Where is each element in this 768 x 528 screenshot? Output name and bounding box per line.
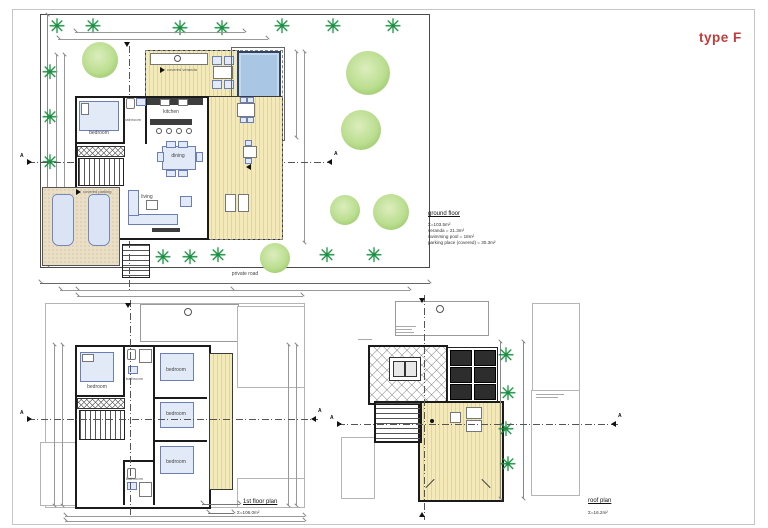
dining-chair xyxy=(178,170,188,177)
palm-tree-icon: ✳ xyxy=(83,17,103,37)
stool-icon xyxy=(156,128,162,134)
dining-chair xyxy=(166,170,176,177)
wardrobe xyxy=(77,146,125,157)
palm-tree-icon: ✳ xyxy=(317,246,337,266)
flue xyxy=(405,361,417,377)
palm-tree-icon: ✳ xyxy=(47,17,67,37)
label-arrow-icon xyxy=(76,189,81,195)
room-label-bedroom: bedroom xyxy=(158,460,194,465)
stool-icon xyxy=(176,128,182,134)
room-label-bedroom: bedroom xyxy=(82,131,116,136)
section-label: A xyxy=(334,152,338,157)
room-label-bedroom: bedroom xyxy=(158,368,194,373)
terrace-outline xyxy=(40,442,80,506)
dimension-line xyxy=(58,39,268,40)
road-edge-line xyxy=(40,283,430,284)
leader-line xyxy=(202,504,240,505)
car-icon xyxy=(88,194,110,246)
dimension-line xyxy=(296,345,297,505)
solar-panel-array xyxy=(447,347,498,402)
wardrobe xyxy=(77,398,125,409)
palm-tree-icon: ✳ xyxy=(496,346,516,366)
terrace-outline xyxy=(532,303,580,393)
solar-panel xyxy=(450,350,472,366)
plan-title: roof plan xyxy=(588,498,611,505)
palm-tree-icon: ✳ xyxy=(40,63,60,83)
palm-tree-icon: ✳ xyxy=(212,19,232,39)
car-icon xyxy=(52,194,74,246)
section-label: A xyxy=(318,409,322,414)
bush-icon xyxy=(346,51,390,95)
annotation-text-line xyxy=(396,326,416,327)
palm-tree-icon: ✳ xyxy=(40,108,60,128)
dimension-line xyxy=(65,521,305,522)
solar-panel xyxy=(450,384,472,400)
area-stat: parking place (covered) = 30.3m² xyxy=(428,240,496,246)
section-flag xyxy=(611,421,616,427)
sun-lounger xyxy=(466,420,482,432)
palm-tree-icon: ✳ xyxy=(170,19,190,39)
annotation-text-line xyxy=(536,397,558,398)
roof-terrace xyxy=(418,401,504,502)
drawing-type-title: type F xyxy=(699,30,742,45)
dining-chair xyxy=(178,141,188,148)
toilet-icon xyxy=(126,98,135,109)
section-label: A xyxy=(330,416,334,421)
terrace-outline xyxy=(531,390,580,496)
kitchen-counter xyxy=(147,98,203,105)
planter-edge xyxy=(523,342,524,498)
balcony-deck xyxy=(209,353,233,490)
bush-icon xyxy=(341,110,381,150)
kitchen-appliance xyxy=(160,99,170,106)
section-label: A xyxy=(618,414,622,419)
palm-tree-icon: ✳ xyxy=(496,420,516,440)
road-label: private road xyxy=(215,272,275,277)
area-stat: Σ=16.2m² xyxy=(588,510,608,516)
skylight-icon xyxy=(436,305,444,313)
solar-panel xyxy=(474,384,496,400)
toilet-icon xyxy=(127,349,136,360)
dimension-line xyxy=(304,52,305,242)
stool-icon xyxy=(166,128,172,134)
palm-tree-icon: ✳ xyxy=(208,246,228,266)
coffee-table xyxy=(146,200,158,210)
palm-tree-icon: ✳ xyxy=(498,455,518,475)
dimension-line xyxy=(296,52,297,137)
bush-icon xyxy=(260,243,290,273)
section-flag xyxy=(124,42,130,47)
interior-stairs xyxy=(78,158,124,186)
section-label: A xyxy=(20,154,24,159)
section-flag xyxy=(27,159,32,165)
interior-wall xyxy=(153,440,207,442)
solar-panel xyxy=(474,350,496,366)
dimension-line xyxy=(75,32,245,33)
sink-icon xyxy=(136,98,146,106)
dining-chair xyxy=(166,141,176,148)
flue xyxy=(393,361,405,377)
annotation-text-line xyxy=(536,394,564,395)
outdoor-table xyxy=(450,412,461,423)
palm-tree-icon: ✳ xyxy=(364,246,384,266)
annotation-text-line xyxy=(396,329,412,330)
shower-icon xyxy=(139,482,152,497)
room-label-bathroom: bathroom xyxy=(124,118,141,122)
pillow xyxy=(81,103,89,115)
palm-tree-icon: ✳ xyxy=(383,17,403,37)
dimension-line xyxy=(288,345,289,505)
bush-icon xyxy=(373,194,409,230)
kitchen-appliance xyxy=(178,99,188,106)
section-line-vertical xyxy=(424,295,425,520)
palm-tree-icon: ✳ xyxy=(498,384,518,404)
terrace-outline xyxy=(237,306,305,388)
palm-tree-icon: ✳ xyxy=(272,17,292,37)
stairs xyxy=(79,410,125,440)
interior-wall xyxy=(153,345,155,505)
dimension-line xyxy=(65,516,305,517)
dimension-line xyxy=(62,345,63,505)
plan-title: 1st floor plan xyxy=(243,499,277,506)
room-label-dining: dining xyxy=(162,154,194,159)
room-label-living: living xyxy=(134,195,160,200)
plan-title: ground floor xyxy=(428,211,496,218)
bush-icon xyxy=(330,195,360,225)
solar-panel xyxy=(450,367,472,383)
section-line-horizontal xyxy=(28,419,318,420)
section-flag xyxy=(419,298,425,303)
sink-icon xyxy=(127,482,137,490)
annotation-text-line xyxy=(358,339,372,340)
dimension-line xyxy=(54,345,55,505)
section-flag xyxy=(311,416,316,422)
bush-icon xyxy=(82,42,118,78)
section-flag xyxy=(337,421,342,427)
kitchen-island xyxy=(150,119,192,125)
armchair xyxy=(180,196,192,207)
section-line-horizontal xyxy=(338,424,618,425)
leader-line xyxy=(208,513,234,514)
palm-tree-icon: ✳ xyxy=(40,153,60,173)
palm-tree-icon: ✳ xyxy=(180,248,200,268)
interior-wall xyxy=(153,397,207,399)
section-flag xyxy=(125,303,131,308)
annotation-text-line xyxy=(396,332,414,333)
drawing-sheet: type F ✳ ✳ ✳ ✳ ✳ ✳ ✳ ✳ ✳ ✳ ✳ ✳ ✳ ✳ ✳ ✳ ✳… xyxy=(0,0,768,528)
level-marker-icon xyxy=(430,419,434,423)
stool-icon xyxy=(186,128,192,134)
room-label-bathroom: bathroom xyxy=(126,377,143,381)
dimension-line xyxy=(77,296,303,297)
interior-wall xyxy=(123,345,125,397)
pillow xyxy=(82,354,94,362)
room-label-kitchen: kitchen xyxy=(156,110,186,115)
section-flag xyxy=(419,512,425,517)
room-label-bedroom: bedroom xyxy=(80,385,114,390)
interior-wall xyxy=(75,395,125,397)
interior-wall xyxy=(123,460,155,462)
skylight-icon xyxy=(184,308,192,316)
sofa xyxy=(128,190,139,216)
shower-icon xyxy=(139,349,152,363)
sun-lounger xyxy=(466,407,482,419)
room-label-bedroom: bedroom xyxy=(158,412,194,417)
section-flag xyxy=(327,159,332,165)
ground-floor-caption: ground floor Σ=103.5m² veranda = 21.3m² … xyxy=(428,211,496,246)
interior-wall xyxy=(123,460,125,505)
section-label: A xyxy=(20,411,24,416)
dining-chair xyxy=(196,152,203,162)
solar-panel xyxy=(474,367,496,383)
area-stat: Σ=106.0m² xyxy=(237,510,259,516)
entrance-stairs xyxy=(122,244,150,278)
terrace-outline xyxy=(341,437,375,499)
palm-tree-icon: ✳ xyxy=(153,248,173,268)
dimension-line xyxy=(77,290,233,291)
interior-wall xyxy=(75,142,125,144)
parking-label: covered parking xyxy=(83,190,111,194)
section-line-vertical xyxy=(130,300,131,515)
palm-tree-icon: ✳ xyxy=(323,17,343,37)
room-label-bathroom: bathroom xyxy=(126,477,143,481)
tv-unit xyxy=(152,228,180,232)
stairs xyxy=(374,401,422,443)
section-flag xyxy=(27,416,32,422)
